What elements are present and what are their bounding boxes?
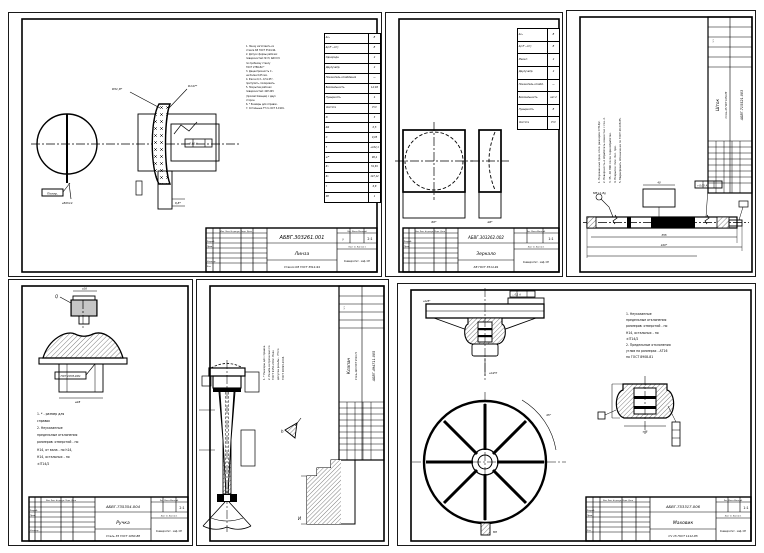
top-dim: ⌀16 xyxy=(82,287,87,291)
drawing-frame xyxy=(210,286,384,541)
title-block: Изм. Лист № докум. Подп. Дата Разраб. Пр… xyxy=(586,497,751,541)
knob-body xyxy=(43,333,123,358)
front-dim: 60* xyxy=(431,220,437,224)
sheet-shaft: Шток Сталь 45 ГОСТ 1050-88 АБВГ.715521.0… xyxy=(566,10,756,277)
tolerance-frame: ⌳ 0,1 А xyxy=(512,294,521,297)
scale-value: 1:1 xyxy=(344,306,346,310)
part-name: Зеркало xyxy=(476,251,496,257)
rim-dim: ⌀125* xyxy=(423,299,431,303)
org-name: Университет · каф. ОП xyxy=(156,530,182,533)
angle-dim: 45° xyxy=(546,413,552,417)
material: Стекло К8 ГОСТ 3514-94 xyxy=(284,265,320,269)
sheet-shaft-art: Шток Сталь 45 ГОСТ 1050-88 АБВГ.715521.0… xyxy=(567,11,757,278)
tb-header-row: Изм. Лист № докум. Подп. Дата xyxy=(603,499,633,502)
mirror-side-view: ⌀6* xyxy=(471,130,509,224)
title-block-rotated: Шток Сталь 45 ГОСТ 1050-88 АБВГ.715521.0… xyxy=(708,17,752,193)
tb-header-row: Изм. Лист № докум. Подп. Дата xyxy=(220,230,252,233)
tb-razrab: Разраб. xyxy=(404,240,412,243)
radius1-label: R51,8* xyxy=(112,87,123,91)
technical-notes: 1. Линзу изготовить изстекла К8 ГОСТ 351… xyxy=(246,45,330,111)
tolerance-frame: ⌖ 0,05 А xyxy=(697,183,708,187)
handwheel-front-view: 45° М8 xyxy=(412,392,566,535)
part-name: Линза xyxy=(294,251,310,257)
thread-label: М8×1-8g xyxy=(593,191,606,195)
tb-lit-row: Лит. Масса Масштаб xyxy=(724,499,742,502)
stub-label: М8 xyxy=(493,530,497,534)
dim-mid: 355 xyxy=(661,233,666,237)
sheet-knob: ⌀16 Q ГОСТ 24705-2004 ⌀28 xyxy=(8,279,193,546)
drawing-montage: Полир. ⌖ 0,01 А R51,8* R147* xyxy=(0,0,764,553)
valve-section-view xyxy=(199,360,259,532)
sheet-valve: Клапан Сталь 40Х ГОСТ 4543-71 АБВГ.49471… xyxy=(196,279,389,546)
tb-prov: Пров. xyxy=(404,246,410,248)
tb-utv: Утв. xyxy=(587,530,592,532)
lens-section-view: ⌖ 0,01 А R51,8* R147* 6,8* ⌀50h14 xyxy=(62,84,219,209)
tb-razrab: Разраб. xyxy=(30,509,38,512)
org-name: Университет · каф. ОП xyxy=(344,260,370,263)
tb-lit-row: Лит. Масса Масштаб xyxy=(160,499,178,502)
sheet-valve-art: Клапан Сталь 40Х ГОСТ 4543-71 АБВГ.49471… xyxy=(197,280,390,547)
title-block: Изм. Лист № докум. Подп. Дата Разраб. Пр… xyxy=(206,228,377,272)
doc-number: АБВГ.735354.004 xyxy=(105,504,141,509)
title-block: Изм. Лист № докум. Подп. Дата Разраб. Пр… xyxy=(403,228,559,272)
technical-notes-rotated: 1. Неуказанные пред. откл. размеров ±IT1… xyxy=(597,55,647,183)
scale-value: 1:1 xyxy=(743,506,748,510)
detail-dim: ⌀48 xyxy=(643,430,648,434)
thread-frame: ГОСТ 24705-2004 xyxy=(61,375,81,378)
tb-prov: Пров. xyxy=(587,515,593,517)
hub-dim: ⌀14H7 xyxy=(489,371,498,375)
scale-value: 2:1 xyxy=(179,506,184,510)
org-name: Университет · каф. ОП xyxy=(720,530,746,533)
detail-h: h xyxy=(281,418,301,438)
doc-number: АБВГ.303261.001 xyxy=(279,235,325,241)
tb-razrab: Разраб. xyxy=(207,240,215,243)
tb-razrab: Разраб. xyxy=(587,509,595,512)
side-dim: ⌀6* xyxy=(487,220,493,224)
detail-h-label: h xyxy=(281,429,284,434)
tb-lit-value: у xyxy=(342,238,344,241)
doc-number: АБВГ.303262.002 xyxy=(467,235,504,240)
q-label: Q xyxy=(55,294,58,299)
scale-value: 1:1 xyxy=(713,39,715,43)
sheet-mirror: 60* ⌀6* Изм. Лист № докум. Подп. Дата Ра… xyxy=(385,12,563,277)
optical-spec-table: ΔnₑВΔ(nF′−nC′)ВМасшт.2Двулучепр.2Показат… xyxy=(517,28,560,130)
tb-header-row: Изм. Лист № докум. Подп. Дата xyxy=(46,499,76,502)
tb-list-row: Лист 1 | Листов 1 xyxy=(161,516,177,518)
technical-notes-rotated: 1. * Размеры для справок.2. Резьба метри… xyxy=(263,288,289,380)
part-name: Шток xyxy=(715,99,720,111)
tb-nkontr: Н.контр. xyxy=(207,261,216,263)
part-name: Маховик xyxy=(673,520,694,526)
detail-step: И xyxy=(298,460,355,524)
diameter-dim: ⌀50h14 xyxy=(62,201,73,205)
sheet-lens: Полир. ⌖ 0,01 А R51,8* R147* xyxy=(8,12,382,277)
part-name: Клапан xyxy=(346,358,351,375)
part-name: Ручка xyxy=(116,520,130,526)
hub-detail-view: ⌀48 xyxy=(598,376,680,446)
tb-nkontr: Н.контр. xyxy=(30,530,39,532)
tb-utv: Утв. xyxy=(207,266,212,268)
tolerance-frame: ⌖ 0,01 А xyxy=(187,142,198,146)
doc-number: АБВГ.753317.006 xyxy=(665,504,701,509)
doc-number: АБВГ.494711.005 xyxy=(372,351,376,382)
surface-finish-label: Полир. xyxy=(47,191,58,195)
technical-notes: 1. * - размер длясправок2. Неуказанныепр… xyxy=(37,411,137,468)
tb-lit-row: Лит. Масса Масштаб xyxy=(527,230,545,233)
tb-prov: Пров. xyxy=(207,246,213,248)
tb-list-row: Лист 1 | Листов 1 xyxy=(348,247,366,249)
mirror-front-view: 60* xyxy=(395,122,473,224)
material: Сталь 40Х ГОСТ 4543-71 xyxy=(355,351,358,380)
technical-notes: 1. Неуказанныепредельные отклоненияразме… xyxy=(626,311,751,361)
material: К8 ГОСТ 3514-94 xyxy=(474,265,499,269)
material: Сталь 35 ГОСТ 1050-88 xyxy=(106,534,140,538)
sheet-handwheel: ⌳ 0,1 А ⌀14H7 ⌀125* xyxy=(397,283,756,546)
title-block: Изм. Лист № докум. Подп. Дата Разраб. Пр… xyxy=(29,497,188,541)
radius2-label: R147* xyxy=(188,84,198,88)
material: Сталь 45 ГОСТ 1050-88 xyxy=(725,91,728,118)
material: СЧ 15 ГОСТ 1412-85 xyxy=(668,534,697,538)
tb-lit-row: Лит. Масса Масштаб xyxy=(347,230,367,233)
handwheel-top-view: ⌳ 0,1 А ⌀14H7 ⌀125* xyxy=(423,288,544,380)
edge-dim: 6,8* xyxy=(175,201,181,205)
dim-len: 420* xyxy=(661,243,668,247)
knob-section-view: ⌀16 Q ГОСТ 24705-2004 ⌀28 xyxy=(39,287,127,405)
tb-header-row: Изм. Лист № докум. Подп. Дата xyxy=(415,230,445,233)
org-name: Университет · каф. ОП xyxy=(523,261,549,264)
tb-prov: Пров. xyxy=(30,515,36,517)
tb-list-row: Лист 1 | Листов 1 xyxy=(725,516,741,518)
bottom-dim: ⌀28 xyxy=(75,400,80,404)
optical-spec-table: ΔnₑВΔ(nF′−nC′)ВОднородн.2Двулучепр.2Пока… xyxy=(324,33,381,203)
doc-number: АБВГ.715521.003 xyxy=(740,90,744,121)
title-block-rotated: Клапан Сталь 40Х ГОСТ 4543-71 АБВГ.49471… xyxy=(339,286,384,460)
scale-value: 2:1 xyxy=(367,237,372,241)
scale-value: 1:1 xyxy=(548,237,553,241)
tb-list-row: Лист 1 | Листов 1 xyxy=(528,247,544,249)
key-dim: 40 xyxy=(657,181,661,185)
detail-i-label: И xyxy=(298,516,301,521)
